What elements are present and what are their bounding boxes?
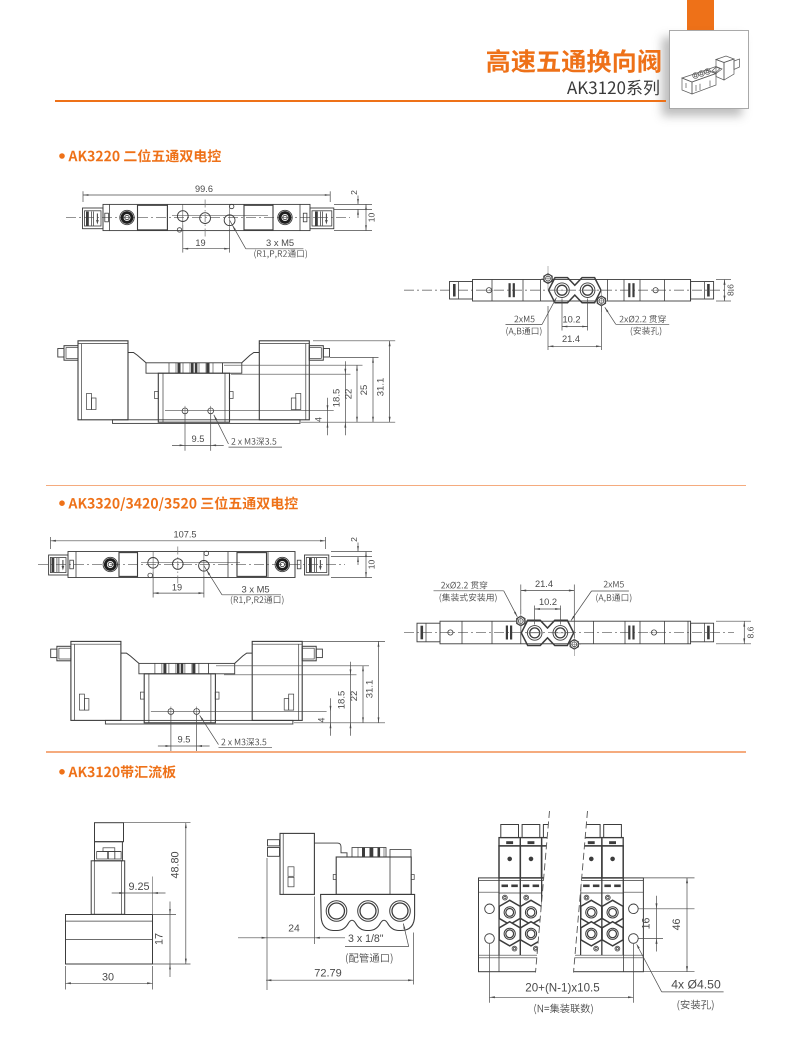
svg-text:19: 19 (195, 238, 205, 248)
svg-text:18.5: 18.5 (337, 691, 348, 710)
svg-text:25: 25 (359, 385, 370, 396)
svg-text:4: 4 (317, 717, 327, 722)
svg-text:9.25: 9.25 (128, 881, 149, 893)
svg-text:8.6: 8.6 (746, 626, 756, 638)
svg-text:10: 10 (367, 560, 377, 570)
svg-text:30: 30 (102, 971, 114, 983)
svg-text:22: 22 (349, 691, 360, 702)
svg-text:18.5: 18.5 (332, 389, 343, 408)
svg-text:48.80: 48.80 (170, 851, 182, 878)
svg-text:3 x M5: 3 x M5 (266, 237, 294, 248)
svg-text:4: 4 (314, 417, 324, 422)
svg-text:20+(N-1)x10.5: 20+(N-1)x10.5 (525, 982, 599, 995)
svg-text:2: 2 (349, 190, 359, 195)
svg-text:21.4: 21.4 (535, 579, 553, 589)
svg-text:24: 24 (288, 924, 300, 935)
svg-text:16: 16 (641, 918, 653, 930)
svg-text:17: 17 (154, 933, 166, 945)
svg-text:3 x M5: 3 x M5 (242, 583, 270, 594)
svg-text:46: 46 (671, 919, 683, 931)
svg-text:9.5: 9.5 (192, 434, 205, 444)
svg-text:31.1: 31.1 (365, 680, 376, 699)
svg-text:4x Ø4.50: 4x Ø4.50 (671, 978, 721, 992)
svg-text:72.79: 72.79 (314, 968, 342, 980)
svg-text:31.1: 31.1 (376, 378, 387, 397)
svg-text:8.6: 8.6 (726, 284, 736, 296)
svg-text:10: 10 (367, 213, 377, 223)
svg-text:21.4: 21.4 (562, 334, 580, 344)
svg-text:99.6: 99.6 (195, 184, 213, 194)
svg-text:2: 2 (349, 537, 359, 542)
svg-text:10.2: 10.2 (562, 314, 580, 324)
svg-text:9.5: 9.5 (178, 734, 191, 744)
svg-text:10.2: 10.2 (539, 597, 557, 607)
svg-text:3 x 1/8": 3 x 1/8" (348, 933, 384, 945)
svg-text:22: 22 (344, 389, 355, 400)
svg-text:19: 19 (172, 582, 182, 592)
svg-text:107.5: 107.5 (174, 530, 197, 540)
